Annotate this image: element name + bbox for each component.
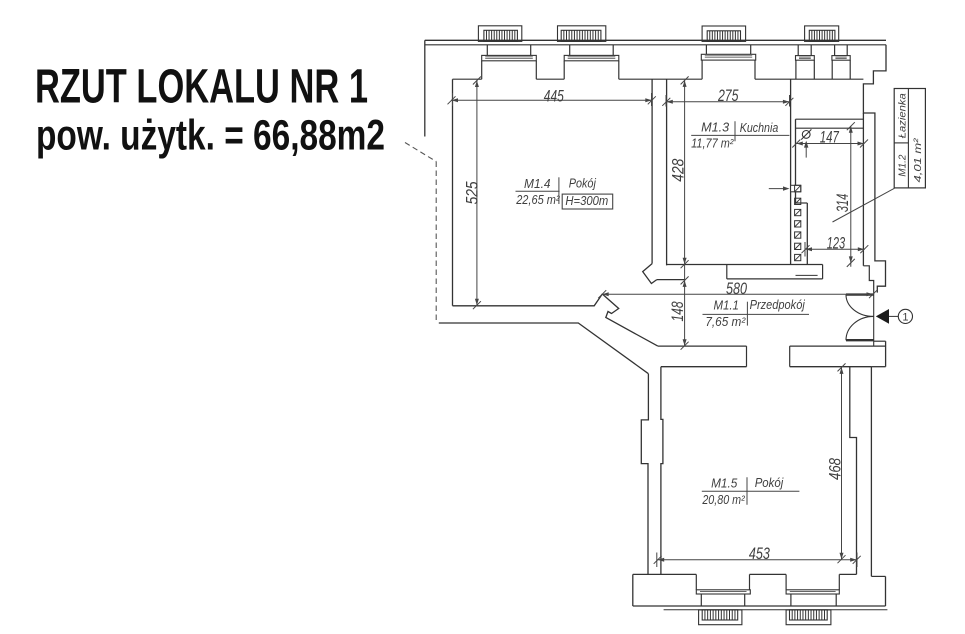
svg-text:Przedpokój: Przedpokój [750,298,806,312]
svg-text:Pokój: Pokój [755,476,785,490]
svg-text:123: 123 [827,235,845,253]
svg-text:11,77 m²: 11,77 m² [691,136,734,150]
svg-text:4,01 m²: 4,01 m² [912,138,924,183]
svg-text:M1.4: M1.4 [524,177,551,191]
svg-text:M1.3: M1.3 [701,121,729,135]
svg-text:148: 148 [669,302,687,322]
svg-text:Kuchnia: Kuchnia [740,121,779,135]
svg-text:pow. użytk. = 66,88m2: pow. użytk. = 66,88m2 [36,113,385,160]
svg-text:314: 314 [834,194,852,212]
svg-text:275: 275 [717,87,739,105]
svg-text:1: 1 [902,311,908,323]
svg-text:525: 525 [464,181,482,205]
svg-text:468: 468 [826,458,844,480]
svg-text:445: 445 [544,87,565,105]
svg-text:RZUT LOKALU NR 1: RZUT LOKALU NR 1 [35,60,368,114]
svg-text:M1.2: M1.2 [896,154,908,176]
svg-text:453: 453 [749,545,770,563]
svg-text:Łazienka: Łazienka [896,93,908,138]
svg-text:7,65 m²: 7,65 m² [705,315,746,329]
svg-text:22,65 m²: 22,65 m² [515,193,560,207]
svg-text:M1.1: M1.1 [713,299,739,313]
svg-text:H=300m: H=300m [565,194,608,208]
svg-text:M1.5: M1.5 [711,476,737,490]
svg-text:428: 428 [669,159,687,182]
svg-text:20,80 m²: 20,80 m² [701,493,745,507]
svg-text:147: 147 [820,129,840,147]
svg-text:580: 580 [726,280,747,298]
svg-text:Pokój: Pokój [569,177,597,191]
